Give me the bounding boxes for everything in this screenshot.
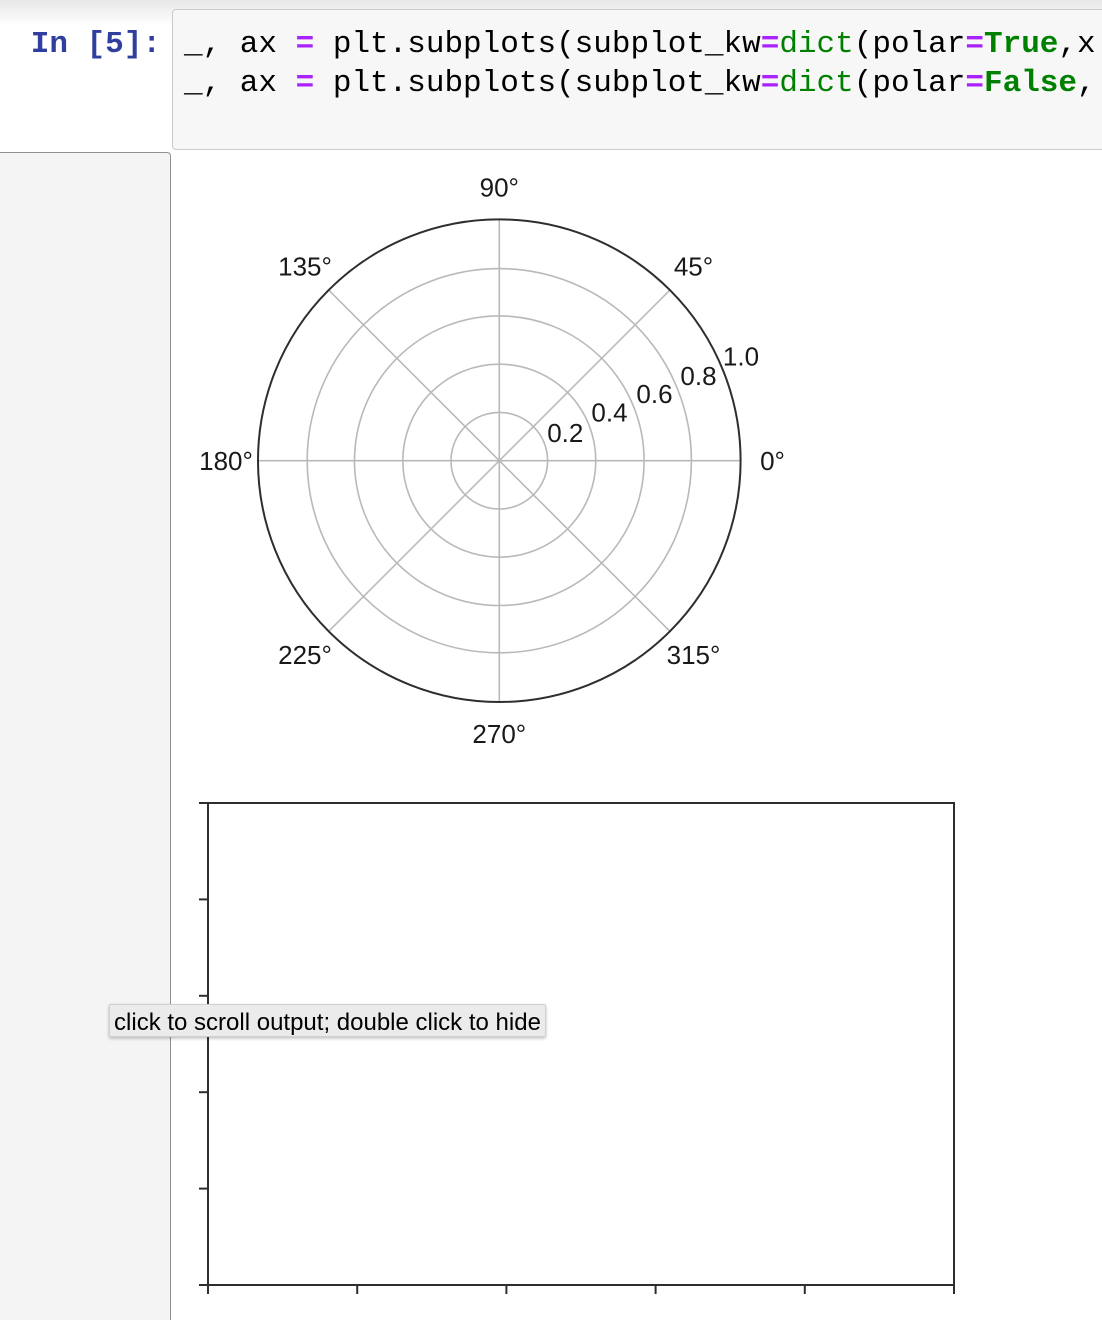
svg-text:315°: 315° bbox=[667, 640, 721, 670]
svg-text:180°: 180° bbox=[199, 446, 253, 476]
svg-text:270°: 270° bbox=[472, 719, 526, 749]
svg-text:0.4: 0.4 bbox=[591, 398, 627, 428]
svg-text:90°: 90° bbox=[480, 173, 519, 203]
svg-text:45°: 45° bbox=[674, 251, 713, 281]
svg-text:225°: 225° bbox=[278, 640, 332, 670]
svg-text:0.2: 0.2 bbox=[547, 418, 583, 448]
svg-text:1.0: 1.0 bbox=[723, 342, 759, 372]
svg-text:0.6: 0.6 bbox=[636, 379, 672, 409]
svg-text:0°: 0° bbox=[760, 446, 785, 476]
svg-text:0.8: 0.8 bbox=[680, 361, 716, 391]
svg-text:135°: 135° bbox=[278, 251, 332, 281]
